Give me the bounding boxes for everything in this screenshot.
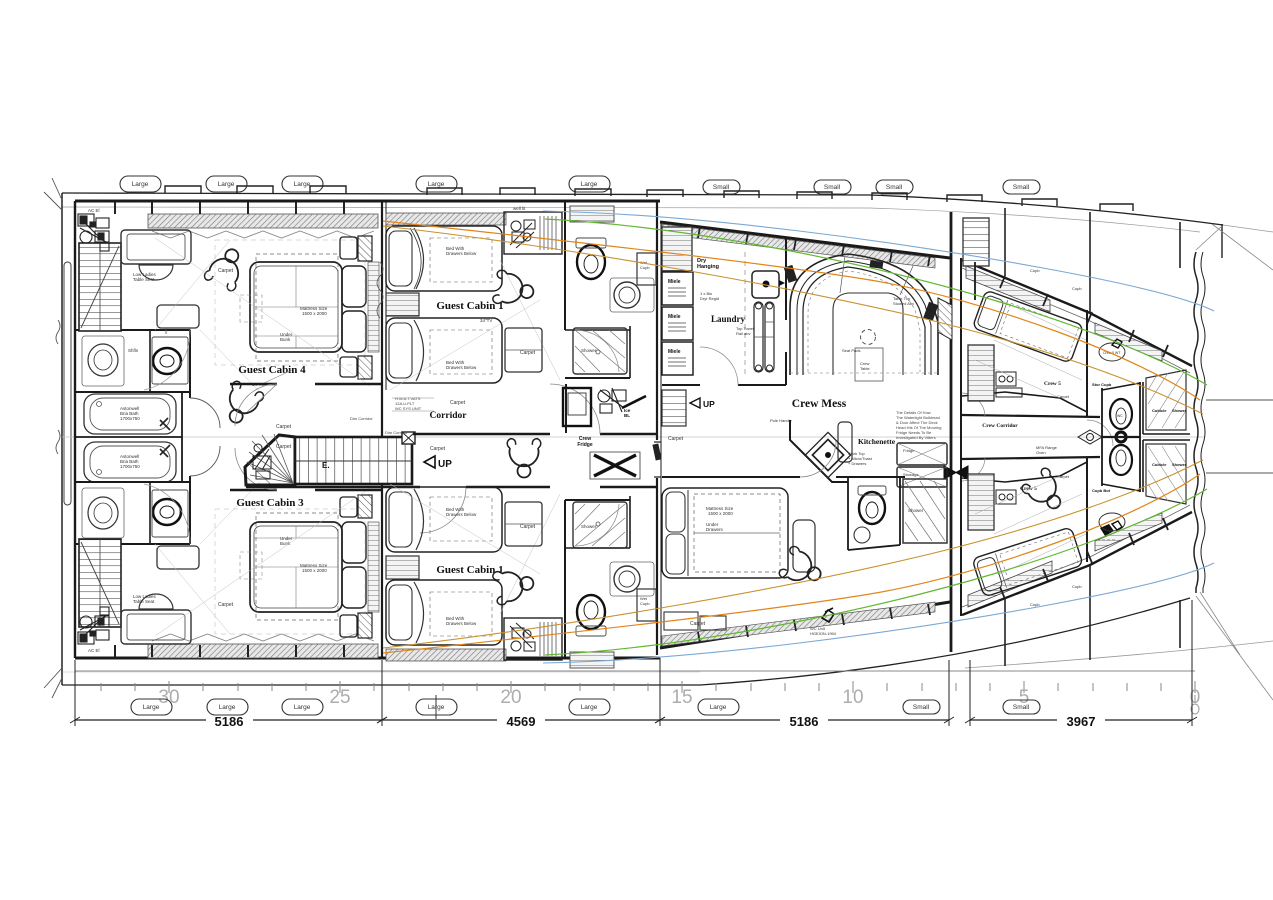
svg-text:Cupb: Cupb bbox=[1030, 268, 1040, 273]
svg-text:Oven: Oven bbox=[1036, 450, 1046, 455]
svg-text:Cupb: Cupb bbox=[1072, 286, 1082, 291]
svg-text:3967: 3967 bbox=[1067, 714, 1096, 729]
svg-text:Kitchenette: Kitchenette bbox=[858, 437, 896, 446]
svg-text:Dryr Regld: Dryr Regld bbox=[700, 296, 719, 301]
svg-text:Miele: Miele bbox=[668, 349, 681, 355]
svg-text:Crew Mess: Crew Mess bbox=[792, 398, 847, 410]
svg-text:1500 x 2000: 1500 x 2000 bbox=[708, 511, 733, 516]
svg-text:25: 25 bbox=[329, 687, 350, 708]
svg-text:Large: Large bbox=[428, 181, 445, 188]
svg-text:Cubicle: Cubicle bbox=[1152, 462, 1167, 467]
svg-text:Guest Cabin 4: Guest Cabin 4 bbox=[238, 364, 306, 376]
svg-text:Carpet: Carpet bbox=[218, 602, 234, 608]
svg-text:Dim Corridor: Dim Corridor bbox=[385, 430, 408, 435]
svg-text:Fridge: Fridge bbox=[577, 442, 592, 448]
svg-text:Large: Large bbox=[710, 704, 727, 711]
svg-text:34"TV: 34"TV bbox=[480, 318, 492, 323]
svg-text:HGEION-1994: HGEION-1994 bbox=[810, 631, 837, 636]
svg-text:Carpet: Carpet bbox=[450, 400, 466, 406]
svg-text:Carpet: Carpet bbox=[690, 621, 706, 627]
svg-text:Small: Small bbox=[1013, 184, 1030, 191]
svg-text:UP: UP bbox=[703, 399, 715, 409]
svg-text:Shower: Shower bbox=[1172, 462, 1187, 467]
svg-text:Carpet: Carpet bbox=[668, 436, 684, 442]
svg-text:Drawers Below: Drawers Below bbox=[446, 512, 477, 517]
svg-text:Small: Small bbox=[713, 184, 730, 191]
svg-text:Carpet: Carpet bbox=[520, 524, 536, 530]
svg-text:5186: 5186 bbox=[215, 714, 244, 729]
svg-text:Shower: Shower bbox=[581, 348, 597, 353]
svg-text:Large: Large bbox=[581, 181, 598, 188]
svg-text:15: 15 bbox=[671, 687, 692, 708]
svg-text:Drawers Below: Drawers Below bbox=[446, 365, 477, 370]
svg-text:Small: Small bbox=[886, 184, 903, 191]
svg-text:Large: Large bbox=[132, 181, 149, 188]
svg-text:Drawers Below: Drawers Below bbox=[446, 621, 477, 626]
svg-text:1700x750: 1700x750 bbox=[120, 416, 140, 421]
svg-text:AC El: AC El bbox=[88, 208, 100, 213]
svg-text:Investigated By Vitters: Investigated By Vitters bbox=[896, 435, 936, 440]
svg-text:Stowed Abv: Stowed Abv bbox=[893, 301, 914, 306]
svg-text:Small: Small bbox=[824, 184, 841, 191]
svg-text:Carpet: Carpet bbox=[520, 350, 536, 356]
svg-text:Shfls: Shfls bbox=[128, 348, 139, 353]
svg-text:1500 x 2000: 1500 x 2000 bbox=[302, 568, 327, 573]
svg-text:Fridge: Fridge bbox=[903, 448, 915, 453]
svg-text:well lit: well lit bbox=[513, 206, 526, 211]
svg-text:Small: Small bbox=[913, 704, 930, 711]
svg-text:Crew Corridor: Crew Corridor bbox=[982, 423, 1018, 429]
svg-text:Carpet: Carpet bbox=[430, 446, 446, 452]
svg-text:5186: 5186 bbox=[790, 714, 819, 729]
svg-text:Large: Large bbox=[294, 181, 311, 188]
svg-text:Cupb: Cupb bbox=[640, 601, 650, 606]
svg-text:Drawers: Drawers bbox=[706, 527, 724, 532]
svg-text:Cupb Bot: Cupb Bot bbox=[1092, 488, 1111, 493]
svg-text:Large: Large bbox=[581, 704, 598, 711]
svg-text:+ Drawers: + Drawers bbox=[848, 461, 866, 466]
svg-text:Cubicle: Cubicle bbox=[1152, 408, 1167, 413]
svg-text:Shower: Shower bbox=[581, 524, 597, 529]
svg-text:10: 10 bbox=[842, 687, 863, 708]
svg-text:Guest Cabin 3: Guest Cabin 3 bbox=[236, 497, 304, 509]
svg-text:Table Seat: Table Seat bbox=[133, 277, 155, 282]
svg-text:WC SYS UNIT: WC SYS UNIT bbox=[395, 406, 422, 411]
svg-text:Large: Large bbox=[294, 704, 311, 711]
svg-text:Bunk: Bunk bbox=[280, 337, 291, 342]
svg-text:WC: WC bbox=[1117, 414, 1123, 418]
svg-text:Large: Large bbox=[218, 181, 235, 188]
svg-text:E.: E. bbox=[322, 461, 330, 470]
svg-text:BL: BL bbox=[624, 413, 630, 418]
svg-text:Drawers Below: Drawers Below bbox=[446, 251, 477, 256]
svg-text:UP: UP bbox=[438, 459, 452, 470]
svg-text:Shower: Shower bbox=[1172, 408, 1187, 413]
svg-text:1700x750: 1700x750 bbox=[120, 464, 140, 469]
svg-text:30: 30 bbox=[158, 687, 179, 708]
svg-text:Dim Corridor: Dim Corridor bbox=[350, 416, 373, 421]
svg-text:Small: Small bbox=[1013, 704, 1030, 711]
svg-text:1500 x 2000: 1500 x 2000 bbox=[302, 311, 327, 316]
svg-text:Corridor: Corridor bbox=[430, 411, 468, 421]
svg-text:4569: 4569 bbox=[507, 714, 536, 729]
svg-text:Miele: Miele bbox=[668, 279, 681, 285]
svg-text:AC El: AC El bbox=[88, 648, 100, 653]
svg-text:Carpet: Carpet bbox=[276, 424, 292, 430]
svg-text:Table: Table bbox=[860, 366, 870, 371]
svg-text:Carpet: Carpet bbox=[218, 268, 234, 274]
svg-text:20: 20 bbox=[500, 687, 521, 708]
svg-text:Large: Large bbox=[219, 704, 236, 711]
svg-text:Cupb: Cupb bbox=[640, 265, 650, 270]
svg-text:Laundry: Laundry bbox=[711, 314, 746, 324]
svg-text:Carpet: Carpet bbox=[1057, 394, 1070, 399]
svg-text:Table Seat: Table Seat bbox=[133, 599, 155, 604]
svg-text:Hanging: Hanging bbox=[697, 264, 719, 270]
svg-text:Large: Large bbox=[143, 704, 160, 711]
svg-text:Miele: Miele bbox=[668, 314, 681, 320]
svg-text:Cupb: Cupb bbox=[1072, 584, 1082, 589]
svg-text:Crew 5: Crew 5 bbox=[1044, 381, 1061, 387]
svg-text:Stor Cupb: Stor Cupb bbox=[1092, 382, 1112, 387]
svg-text:Shower: Shower bbox=[908, 508, 924, 513]
svg-text:Rail abv: Rail abv bbox=[736, 331, 750, 336]
svg-text:Seat Pads: Seat Pads bbox=[842, 348, 860, 353]
